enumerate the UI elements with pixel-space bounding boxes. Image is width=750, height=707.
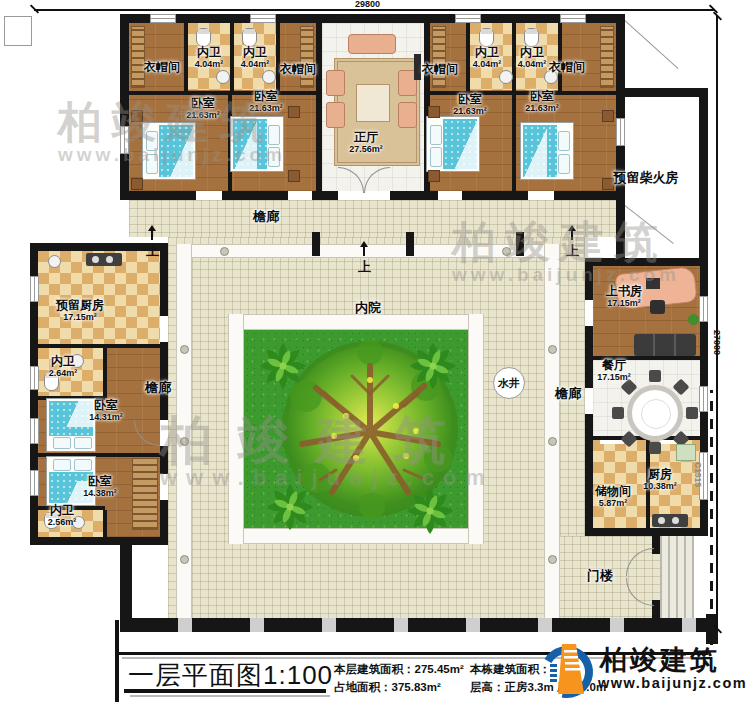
walkway-band xyxy=(468,314,484,544)
stat-building-area: 本栋建筑面积： xyxy=(470,662,551,677)
nightstand xyxy=(428,106,440,118)
plan-title: 一层平面图1:100 xyxy=(128,658,333,693)
window xyxy=(560,14,586,23)
room-label-gatehouse: 门楼 xyxy=(587,569,613,584)
room-label-bedroom: 卧室21.63m² xyxy=(249,90,283,114)
dashed-boundary xyxy=(710,390,713,645)
toilet-icon xyxy=(524,28,539,47)
dining-chair xyxy=(686,407,698,419)
window xyxy=(120,126,129,154)
column-dot xyxy=(180,437,189,446)
room-label-bath: 内卫4.04m² xyxy=(195,46,224,70)
room-label-bedroom: 卧室14.31m² xyxy=(89,399,123,423)
sofa xyxy=(348,34,396,54)
brand-name: 柏竣建筑 xyxy=(600,642,720,678)
corridor-north-floor xyxy=(129,200,616,237)
room-label-bath: 内卫2.64m² xyxy=(49,355,78,379)
room-label-bedroom: 卧室21.63m² xyxy=(186,97,220,121)
door-opening xyxy=(160,316,168,342)
room-label-main-hall: 正厅27.56m² xyxy=(349,131,383,155)
sink-icon xyxy=(676,444,696,461)
palm-plant-icon xyxy=(404,486,456,536)
room-label-wardrobe: 衣帽间 xyxy=(549,61,585,74)
window xyxy=(30,276,39,302)
walkway-band xyxy=(228,314,484,330)
door-opening xyxy=(600,440,624,444)
column xyxy=(406,232,414,256)
armchair xyxy=(326,102,345,128)
armchair xyxy=(398,102,417,128)
tv-cabinet xyxy=(414,54,421,80)
door-opening xyxy=(528,191,554,200)
partition xyxy=(184,23,188,95)
bed xyxy=(142,122,196,180)
burner xyxy=(658,517,665,524)
plant-icon xyxy=(688,314,699,325)
room-label-bedroom: 卧室14.38m² xyxy=(83,475,117,499)
south-boundary-wall xyxy=(120,618,708,632)
room-label-bedroom: 卧室21.63m² xyxy=(453,93,487,117)
window xyxy=(30,470,39,496)
column-dot xyxy=(220,247,229,256)
sink-icon xyxy=(499,70,513,84)
door-opening xyxy=(585,388,593,414)
partition xyxy=(316,23,322,191)
corridor-label: 檐廊 xyxy=(253,210,279,225)
door-opening xyxy=(288,191,312,200)
partition xyxy=(276,23,280,95)
dimension-line-top xyxy=(34,9,714,11)
bed xyxy=(520,122,574,180)
step-up-marker: 上 xyxy=(146,242,159,260)
well-marker: 水井 xyxy=(493,367,525,399)
courtyard-label: 内院 xyxy=(355,301,381,316)
annex-wall xyxy=(616,88,708,97)
toilet-icon xyxy=(242,28,257,47)
nightstand xyxy=(288,106,300,118)
partition xyxy=(466,23,470,95)
gate-steps xyxy=(660,536,694,618)
toilet-icon xyxy=(479,28,494,47)
door-opening xyxy=(438,191,462,200)
room-label-wardrobe: 衣帽间 xyxy=(280,63,316,76)
title-underline-shadow xyxy=(130,695,330,697)
room-label-wardrobe: 衣帽间 xyxy=(422,63,458,76)
column xyxy=(516,232,524,256)
partition xyxy=(558,23,562,95)
nightstand xyxy=(288,170,300,182)
nightstand xyxy=(131,110,143,122)
stat-footprint-area: 占地面积：375.83m² xyxy=(334,680,441,695)
room-label-study: 上书房17.15m² xyxy=(606,285,642,309)
window xyxy=(699,386,708,412)
nightstand xyxy=(131,178,143,190)
door-opening xyxy=(160,420,168,446)
room-label-firewood: 预留柴火房 xyxy=(614,171,679,186)
dimension-top-value: 29800 xyxy=(355,0,380,9)
sink-icon xyxy=(216,70,230,84)
brand-logo-icon xyxy=(540,636,598,702)
column-dot xyxy=(548,437,557,446)
dining-chair xyxy=(649,370,661,382)
corridor-label: 檐廊 xyxy=(145,381,171,396)
partition xyxy=(103,348,107,398)
walkway-band xyxy=(228,314,244,544)
computer-icon xyxy=(646,278,660,289)
coffee-table xyxy=(356,84,390,122)
column-dot xyxy=(180,555,189,564)
room-label-kitchen: 厨房10.38m² xyxy=(643,468,677,492)
room-label-bath: 内卫4.04m² xyxy=(473,46,502,70)
dining-chair xyxy=(612,407,624,419)
room-label-res-kitchen: 预留厨房17.15m² xyxy=(56,299,104,323)
door-opening xyxy=(585,300,593,326)
step-up-marker: 上 xyxy=(358,258,371,276)
door-opening xyxy=(160,474,168,500)
nightstand xyxy=(602,178,614,190)
dining-table-center xyxy=(641,399,671,429)
sink-icon xyxy=(262,70,276,84)
sink-icon xyxy=(48,255,61,268)
partition xyxy=(512,95,516,191)
palm-plant-icon xyxy=(264,482,316,532)
column xyxy=(312,232,320,256)
partition xyxy=(38,344,160,348)
roof-line xyxy=(624,205,673,244)
room-label-wardrobe: 衣帽间 xyxy=(144,61,180,74)
toilet-icon xyxy=(196,28,211,47)
step-up-marker: 上 xyxy=(566,242,579,260)
stat-floor-area: 本层建筑面积：275.45m² xyxy=(334,662,464,677)
corner-detail xyxy=(4,16,32,46)
window xyxy=(455,14,481,23)
column-dot xyxy=(548,555,557,564)
corridor-label: 檐廊 xyxy=(555,387,581,402)
room-label-dining: 餐厅17.15m² xyxy=(597,359,631,383)
door-opening xyxy=(196,191,222,200)
dining-chair xyxy=(649,442,661,454)
titleblock-border-v xyxy=(115,620,119,702)
window xyxy=(699,296,708,322)
nightstand xyxy=(602,110,614,122)
nightstand xyxy=(428,170,440,182)
palm-plant-icon xyxy=(407,341,459,391)
annex-wall xyxy=(616,195,625,265)
window-tag: C1515 xyxy=(693,462,703,487)
room-label-bath: 内卫4.04m² xyxy=(241,46,270,70)
burner xyxy=(672,517,679,524)
window xyxy=(150,14,176,23)
column-dot xyxy=(548,345,557,354)
dimension-line-right xyxy=(716,16,718,630)
column-dot xyxy=(180,345,189,354)
window xyxy=(30,418,39,444)
window xyxy=(616,118,625,146)
armchair xyxy=(326,70,345,96)
brand-site: www.baijunjz.com xyxy=(598,675,747,691)
partition xyxy=(103,510,107,537)
bed xyxy=(230,116,284,172)
burner xyxy=(106,256,113,263)
bed xyxy=(426,116,480,172)
window xyxy=(30,366,39,390)
column-dot xyxy=(502,247,511,256)
room-label-bath: 内卫4.04m² xyxy=(518,46,547,70)
burner xyxy=(92,256,99,263)
palm-plant-icon xyxy=(257,341,309,391)
partition xyxy=(230,23,234,95)
roof-line xyxy=(624,20,678,69)
office-chair xyxy=(650,300,665,314)
window xyxy=(250,14,276,23)
room-label-bath: 内卫2.56m² xyxy=(48,504,77,528)
partition xyxy=(129,91,320,95)
floorplan-canvas: 29800 27000 C1515 xyxy=(0,0,750,707)
partition xyxy=(512,23,516,95)
annex-wall xyxy=(699,88,708,266)
room-label-storage: 储物间5.87m² xyxy=(595,485,631,509)
sofa xyxy=(634,334,696,356)
room-label-bedroom: 卧室21.63m² xyxy=(525,90,559,114)
